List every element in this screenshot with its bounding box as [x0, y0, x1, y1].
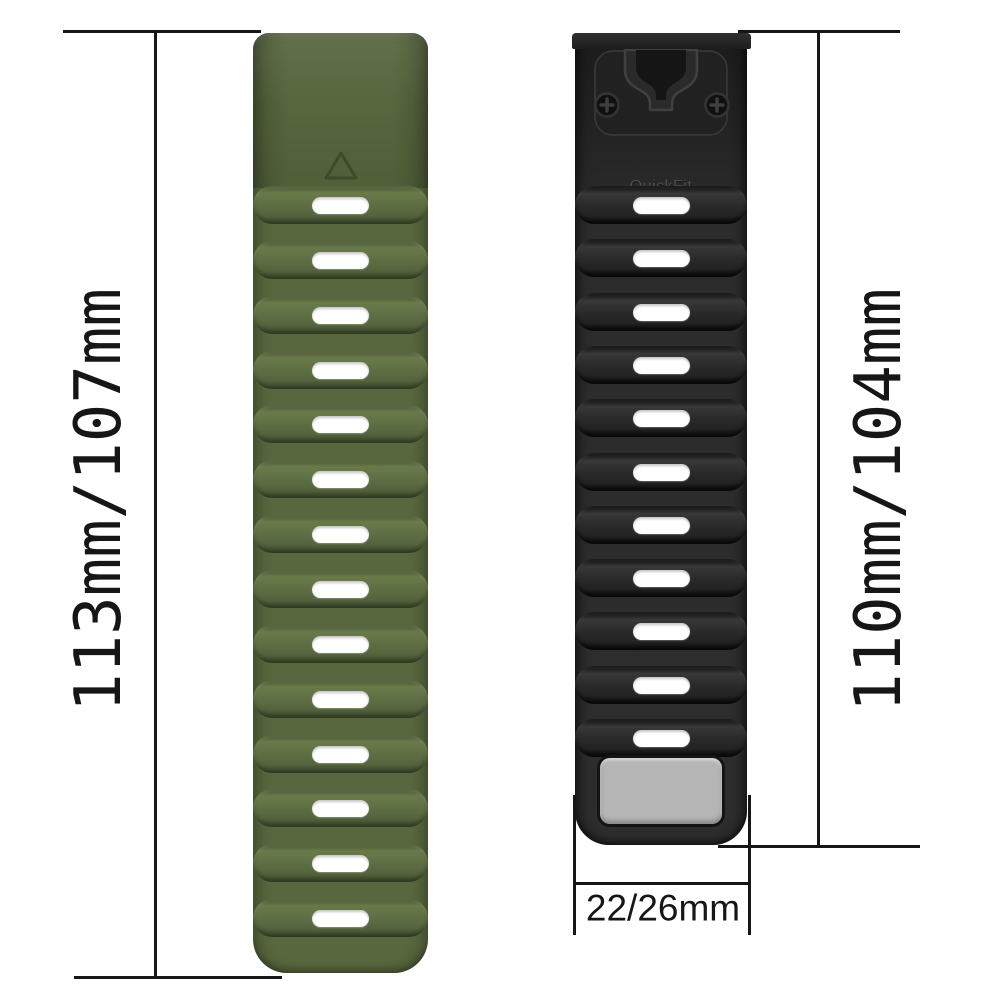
- band-ridge: [575, 346, 747, 384]
- green-watch-band: [253, 33, 428, 973]
- black-watch-band: QuickFit 22: [575, 40, 747, 845]
- band-slot: [633, 250, 690, 267]
- band-ridge: [253, 296, 428, 334]
- left-dimension-vertical-line: [154, 30, 157, 979]
- band-ridge: [253, 680, 428, 718]
- left-dimension-top-cap-line: [63, 30, 261, 33]
- band-slot: [312, 910, 369, 927]
- triangle-icon: [321, 149, 361, 183]
- band-ridge: [253, 844, 428, 882]
- quickfit-connector-top-bar: [572, 33, 751, 49]
- band-slot: [312, 416, 369, 433]
- product-size-diagram: 113mm/107mm 110mm/104mm 22/26mm: [0, 0, 1000, 1000]
- band-slot: [633, 517, 690, 534]
- phillips-screw-icon: [596, 94, 619, 117]
- left-dimension-bottom-cap-line: [74, 976, 282, 979]
- band-ridge: [575, 612, 747, 650]
- band-ridge: [253, 460, 428, 498]
- band-ridge: [575, 666, 747, 704]
- band-slot: [633, 410, 690, 427]
- band-slot: [633, 623, 690, 640]
- band-slot: [633, 570, 690, 587]
- band-ridge: [575, 559, 747, 597]
- band-ridge: [575, 293, 747, 331]
- band-slot: [312, 362, 369, 379]
- width-dimension-horizontal-line: [573, 882, 751, 885]
- band-slot: [312, 471, 369, 488]
- band-ridge: [253, 515, 428, 553]
- band-slot: [633, 357, 690, 374]
- right-dimension-vertical-line: [817, 30, 820, 848]
- band-slot: [633, 304, 690, 321]
- band-ridge: [253, 899, 428, 937]
- phillips-screw-icon: [706, 94, 729, 117]
- metal-keeper-plate: [600, 758, 722, 824]
- band-width-label: 22/26mm: [586, 890, 740, 927]
- band-ridge: [253, 241, 428, 279]
- quickfit-connector-housing: [575, 48, 747, 143]
- band-slot: [633, 197, 690, 214]
- band-ridge: [253, 351, 428, 389]
- band-ridge: [575, 399, 747, 437]
- band-ridge: [253, 570, 428, 608]
- band-slot: [312, 746, 369, 763]
- band-slot: [312, 855, 369, 872]
- band-ridge: [575, 239, 747, 277]
- band-slot: [633, 677, 690, 694]
- band-slot: [312, 800, 369, 817]
- green-band-length-label: 113mm/107mm: [67, 288, 131, 712]
- band-slot: [312, 526, 369, 543]
- width-dimension-right-line: [748, 795, 751, 935]
- band-slot: [312, 691, 369, 708]
- band-ridge: [253, 735, 428, 773]
- band-ridge: [253, 405, 428, 443]
- band-slot: [312, 197, 369, 214]
- band-ridge: [575, 186, 747, 224]
- band-slot: [312, 307, 369, 324]
- band-slot: [312, 636, 369, 653]
- band-slot: [633, 464, 690, 481]
- band-ridge: [575, 453, 747, 491]
- band-ridge: [253, 186, 428, 224]
- black-band-length-label: 110mm/104mm: [847, 288, 911, 712]
- band-slot: [312, 581, 369, 598]
- band-ridge: [253, 625, 428, 663]
- band-ridge: [575, 719, 747, 757]
- band-slot: [633, 730, 690, 747]
- band-slot: [312, 252, 369, 269]
- band-ridge: [253, 789, 428, 827]
- band-ridge: [575, 506, 747, 544]
